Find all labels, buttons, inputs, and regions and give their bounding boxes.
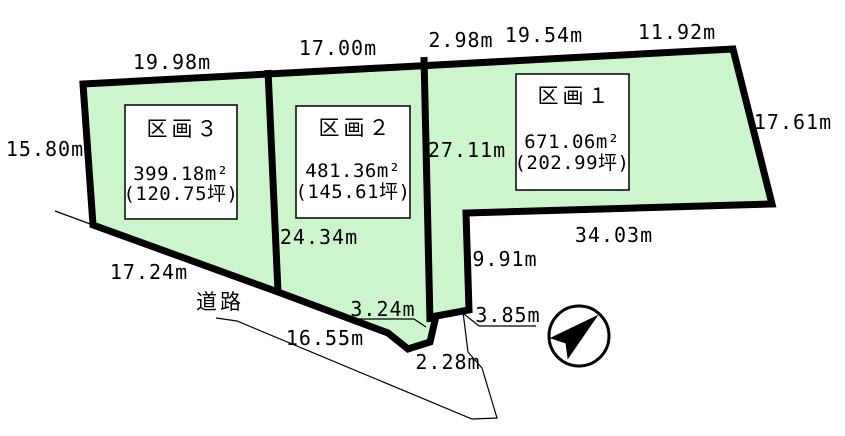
parcel-1-name: 区画１ xyxy=(538,84,613,108)
parcel-3-name: 区画３ xyxy=(147,117,222,141)
north-arrow-icon xyxy=(549,306,609,366)
parcel-2-name: 区画２ xyxy=(319,116,394,140)
road-label: 道路 xyxy=(196,290,244,314)
parcel-1-infobox: 区画１ 671.06m² (202.99坪) xyxy=(514,74,629,190)
parcel-2-infobox: 区画２ 481.36m² (145.61坪) xyxy=(295,106,410,218)
parcel-3-area: 399.18m² xyxy=(133,163,229,185)
dim-divider-k3-k2: 24.34m xyxy=(280,225,358,249)
site-plan-drawing: 19.98m 17.00m 2.98m 19.54m 11.92m 17.61m… xyxy=(0,0,845,436)
parcel-1-tsubo: (202.99坪) xyxy=(514,152,629,174)
parcel-1-area: 671.06m² xyxy=(524,131,620,153)
dim-tip-seg: 2.28m xyxy=(415,350,480,374)
parcel-2-area: 481.36m² xyxy=(305,160,401,182)
parcel-3-tsubo: (120.75坪) xyxy=(123,183,238,205)
dim-notch-bottom: 3.85m xyxy=(475,303,540,327)
dim-bottom-kukaku3: 17.24m xyxy=(110,260,188,284)
dim-left-kukaku3: 15.80m xyxy=(6,137,84,161)
dim-top-kukaku2: 17.00m xyxy=(299,36,377,60)
dim-bottom-kukaku1: 34.03m xyxy=(575,223,653,247)
parcel-3-infobox: 区画３ 399.18m² (120.75坪) xyxy=(123,105,238,219)
dim-road-front: 16.55m xyxy=(286,326,364,350)
parcel-2-tsubo: (145.61坪) xyxy=(295,181,410,203)
dim-bottom-seg-324: 3.24m xyxy=(350,297,415,321)
dim-top-seg2: 19.54m xyxy=(505,23,583,47)
dim-notch-right: 9.91m xyxy=(472,247,537,271)
dim-top-kukaku3: 19.98m xyxy=(133,50,211,74)
dim-divider-k2-k1: 27.11m xyxy=(428,138,506,162)
dim-top-seg3: 11.92m xyxy=(638,20,716,44)
dim-right-kukaku1: 17.61m xyxy=(754,110,832,134)
site-plan: 19.98m 17.00m 2.98m 19.54m 11.92m 17.61m… xyxy=(0,0,845,436)
road-edge-left xyxy=(55,211,93,225)
dim-top-seg1: 2.98m xyxy=(428,28,493,52)
